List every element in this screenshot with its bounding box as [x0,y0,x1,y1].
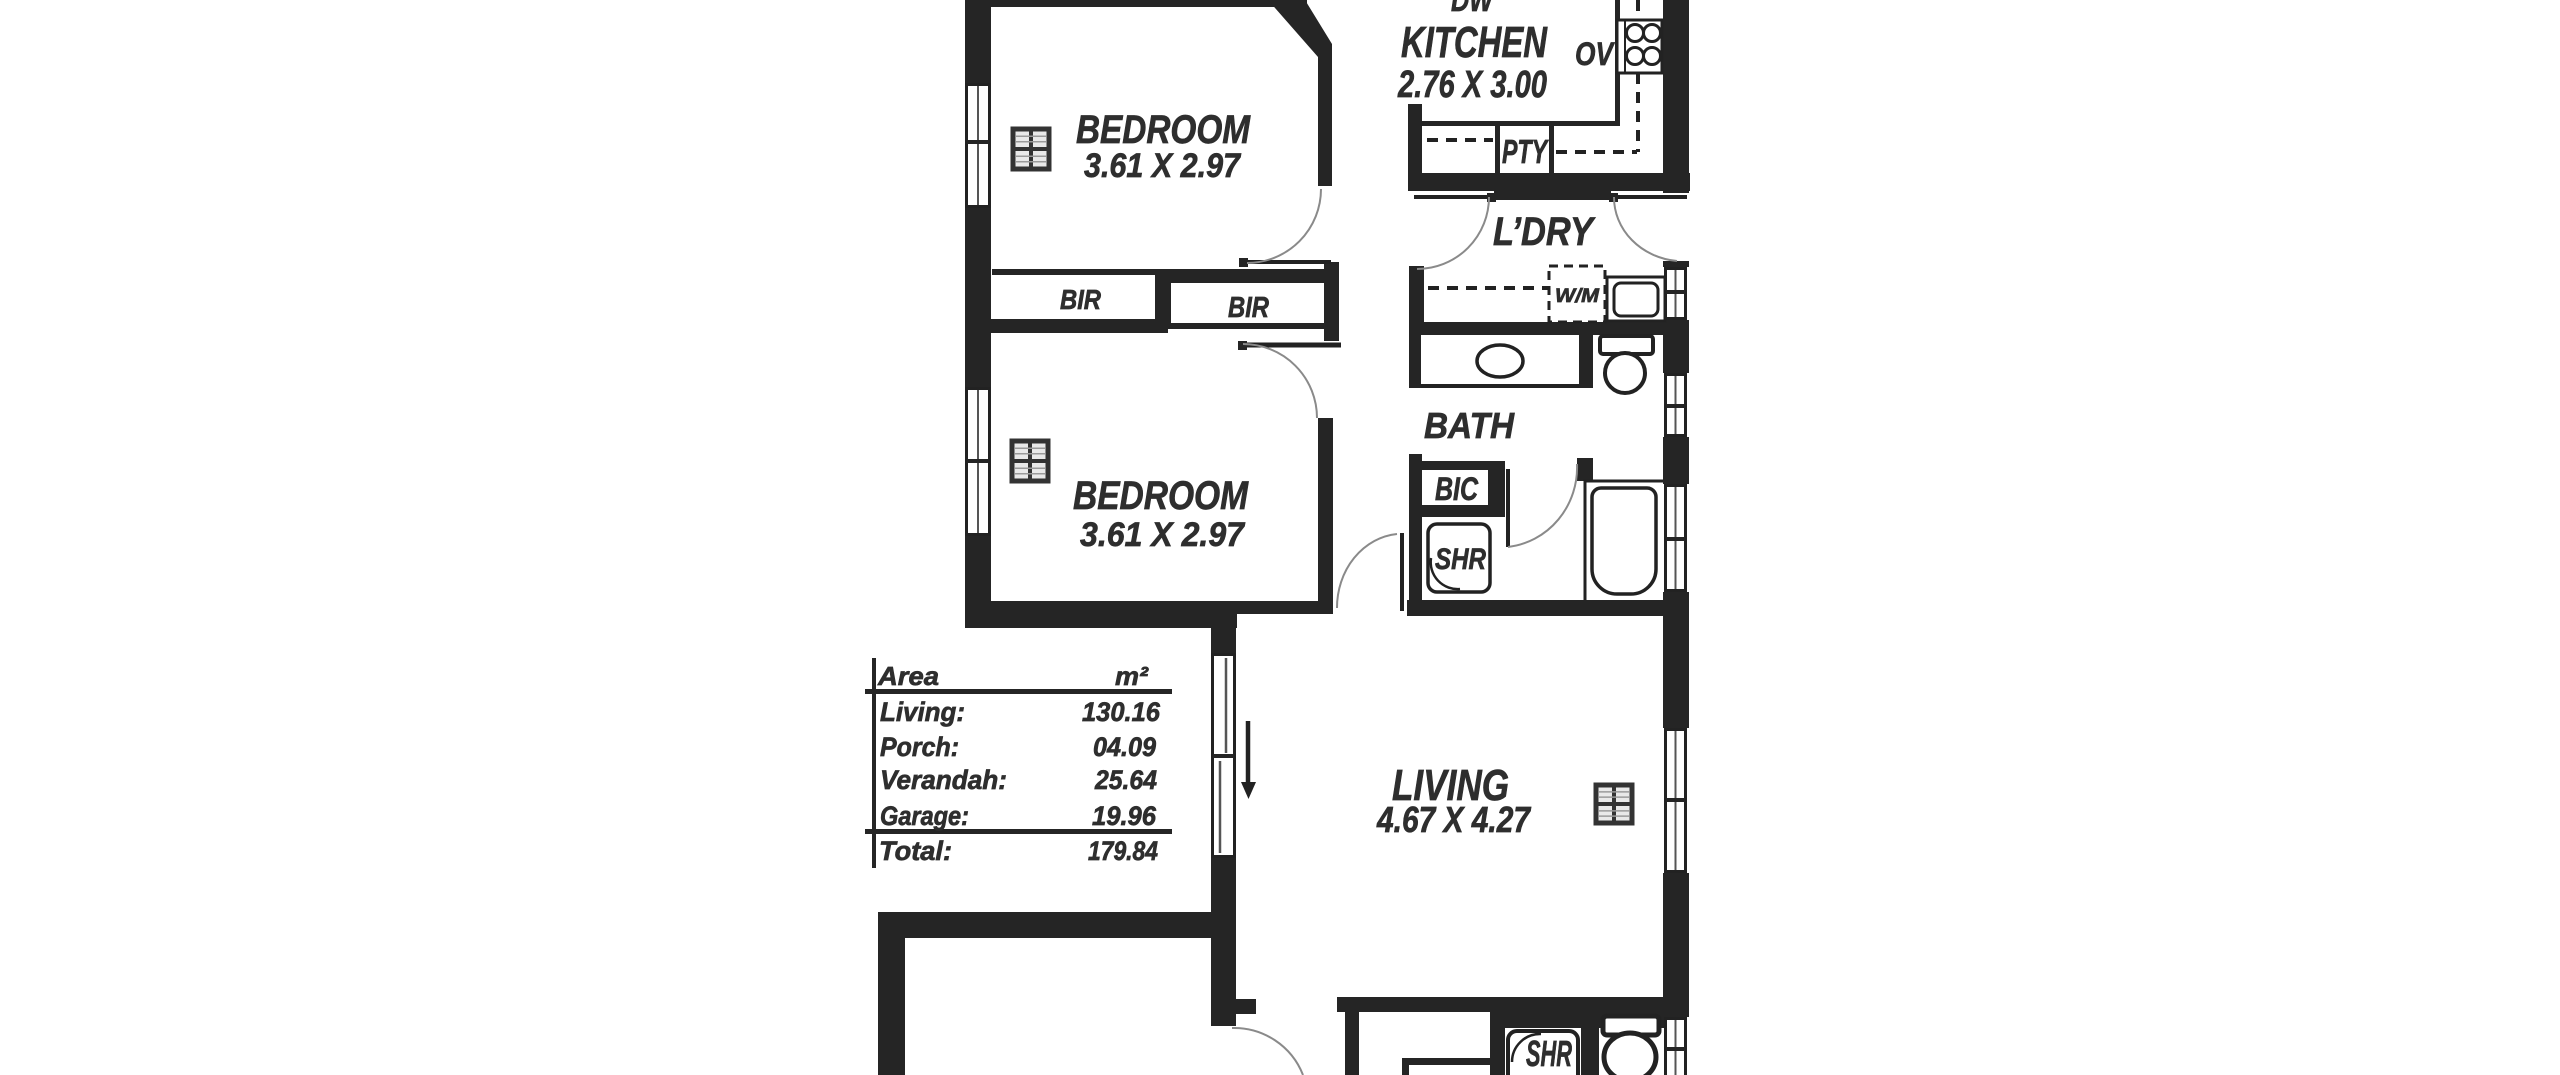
svg-text:BIC: BIC [1435,471,1479,507]
svg-text:Total:: Total: [879,836,952,866]
svg-text:OV: OV [1575,36,1615,72]
svg-text:SHR: SHR [1435,543,1486,576]
svg-text:PTY: PTY [1502,133,1549,170]
svg-text:3.61 X 2.97: 3.61 X 2.97 [1080,516,1246,554]
svg-text:4.67 X 4.27: 4.67 X 4.27 [1376,799,1531,840]
svg-text:BEDROOM: BEDROOM [1073,474,1249,518]
svg-text:3.61 X 2.97: 3.61 X 2.97 [1084,147,1242,185]
svg-text:W/M: W/M [1555,286,1600,307]
svg-text:m²: m² [1115,661,1149,691]
svg-text:19.96: 19.96 [1092,801,1157,831]
svg-text:L’DRY: L’DRY [1493,210,1596,254]
svg-text:BIR: BIR [1060,284,1102,315]
svg-text:Verandah:: Verandah: [880,765,1007,795]
svg-text:2.76 X 3.00: 2.76 X 3.00 [1397,64,1547,106]
svg-text:BEDROOM: BEDROOM [1076,108,1251,152]
svg-text:BIR: BIR [1228,292,1269,324]
svg-text:130.16: 130.16 [1082,697,1161,727]
svg-text:SHR: SHR [1526,1033,1572,1074]
svg-text:179.84: 179.84 [1088,836,1158,866]
svg-text:Garage:: Garage: [880,801,969,831]
svg-text:BATH: BATH [1424,405,1515,446]
svg-text:25.64: 25.64 [1094,765,1157,795]
svg-text:Area: Area [877,661,939,691]
svg-text:DW: DW [1451,0,1495,18]
svg-text:Porch:: Porch: [880,732,959,762]
svg-text:04.09: 04.09 [1093,732,1156,762]
svg-text:Living:: Living: [880,697,965,727]
svg-text:KITCHEN: KITCHEN [1401,18,1548,67]
